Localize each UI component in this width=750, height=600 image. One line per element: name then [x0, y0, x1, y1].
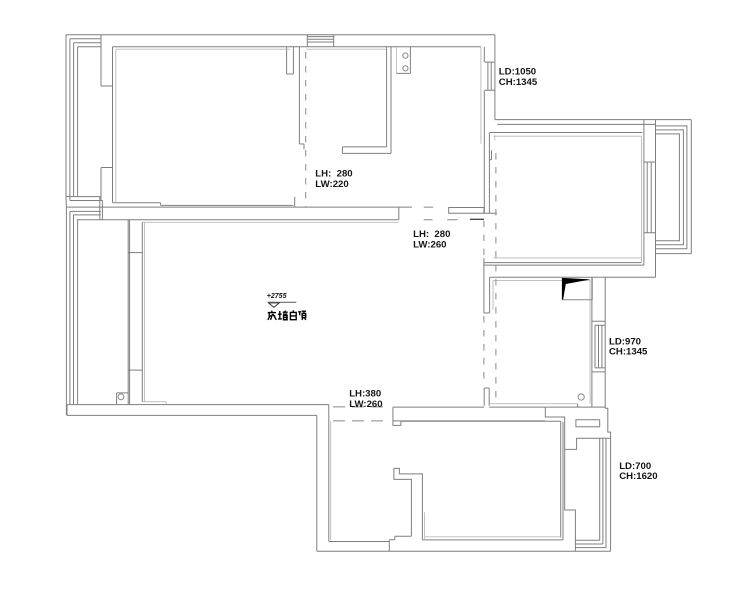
svg-text:LH: 280: LH: 280 [315, 168, 352, 179]
svg-text:LD:1050: LD:1050 [499, 66, 536, 77]
svg-text:LW:260: LW:260 [413, 240, 446, 251]
svg-text:LH:380: LH:380 [349, 388, 381, 399]
svg-text:LH: 280: LH: 280 [413, 229, 450, 240]
svg-text:CH:1345: CH:1345 [609, 347, 648, 358]
svg-text:LW:220: LW:220 [315, 179, 348, 190]
svg-text:CH:1620: CH:1620 [619, 471, 657, 482]
svg-text:+2755: +2755 [267, 293, 287, 300]
svg-text:LW:260: LW:260 [349, 399, 382, 410]
svg-text:CH:1345: CH:1345 [499, 77, 538, 88]
